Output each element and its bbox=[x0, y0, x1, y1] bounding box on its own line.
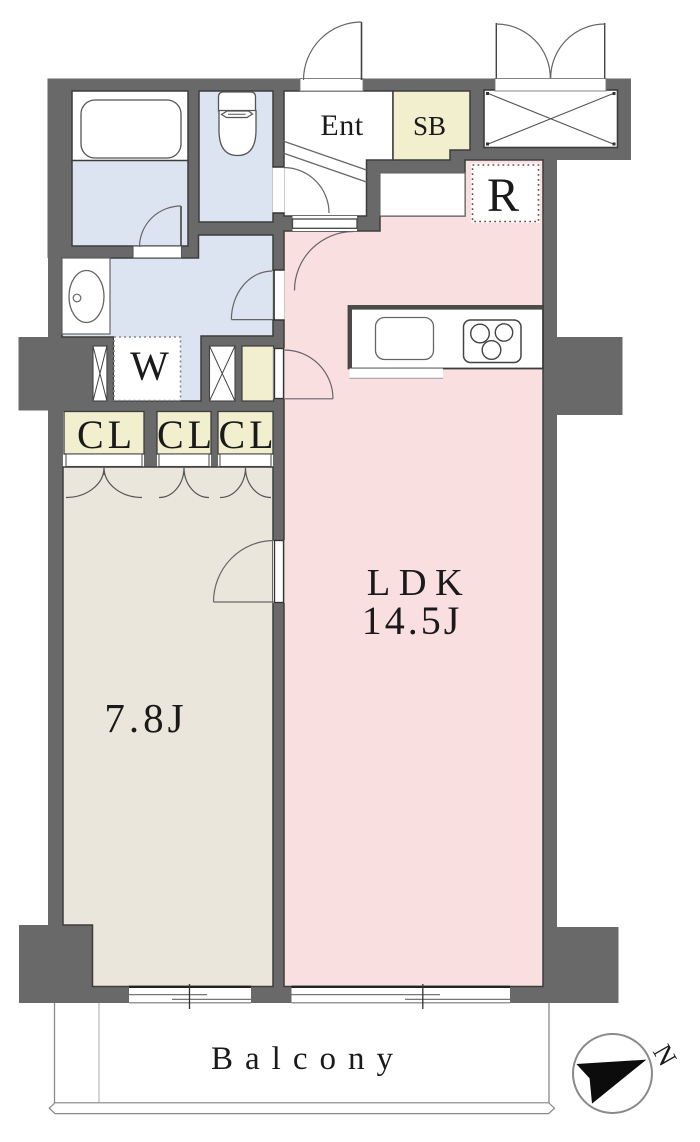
svg-text:SB: SB bbox=[413, 111, 446, 141]
svg-text:R: R bbox=[487, 169, 519, 222]
svg-text:Ent: Ent bbox=[320, 109, 363, 142]
svg-text:14.5J: 14.5J bbox=[362, 598, 463, 643]
svg-text:CL: CL bbox=[157, 412, 216, 457]
svg-text:W: W bbox=[130, 343, 169, 389]
svg-text:Balcony: Balcony bbox=[211, 1041, 405, 1077]
svg-text:CL: CL bbox=[218, 412, 277, 457]
svg-text:7.8J: 7.8J bbox=[104, 695, 187, 741]
svg-text:CL: CL bbox=[77, 412, 136, 457]
